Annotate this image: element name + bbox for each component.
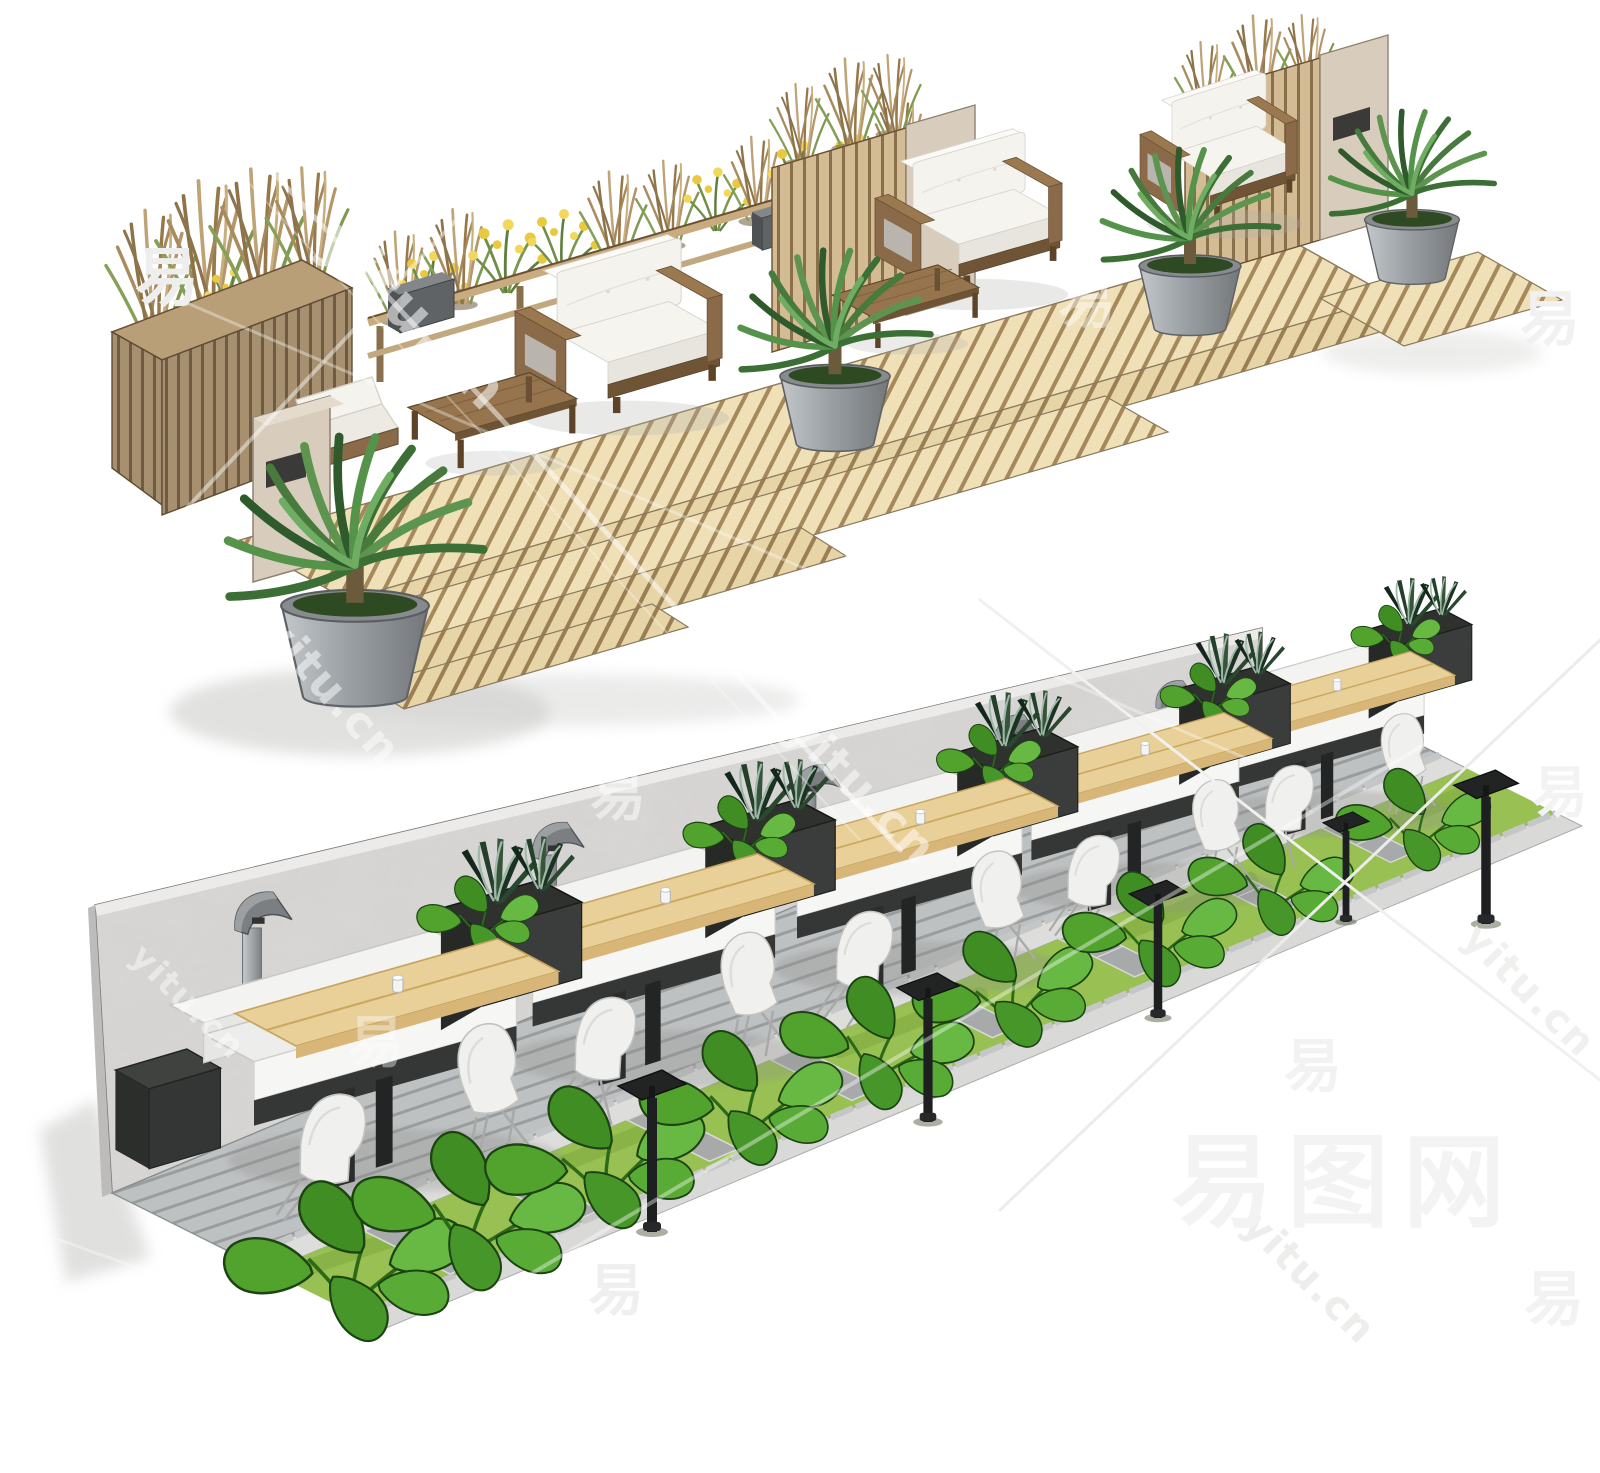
watermark-tile: 易 — [1520, 285, 1580, 355]
watermark-tile: 易 — [1524, 1265, 1584, 1335]
terrace-render-image: 易 易 易 易 易 易 易 易 易 易 yitu.cn yitu.cn yitu… — [0, 0, 1600, 1473]
render-canvas: 易 易 易 易 易 易 易 易 易 易 yitu.cn yitu.cn yitu… — [0, 0, 1600, 1473]
watermark-tile: 易 — [348, 1011, 404, 1076]
watermark-site-name: 易图网 — [1171, 1124, 1519, 1243]
watermark-tile: 易 — [590, 764, 646, 829]
watermark-tile: 易 — [135, 242, 199, 316]
watermark-tile: 易 — [1532, 761, 1588, 826]
watermark-tile: 易 — [1284, 1032, 1342, 1100]
watermark-tile: 易 — [588, 1259, 644, 1324]
watermark-url: yitu.cn — [1453, 915, 1600, 1067]
watermark-tile: 易 — [836, 533, 888, 593]
watermark-tile: 易 — [1058, 268, 1116, 336]
